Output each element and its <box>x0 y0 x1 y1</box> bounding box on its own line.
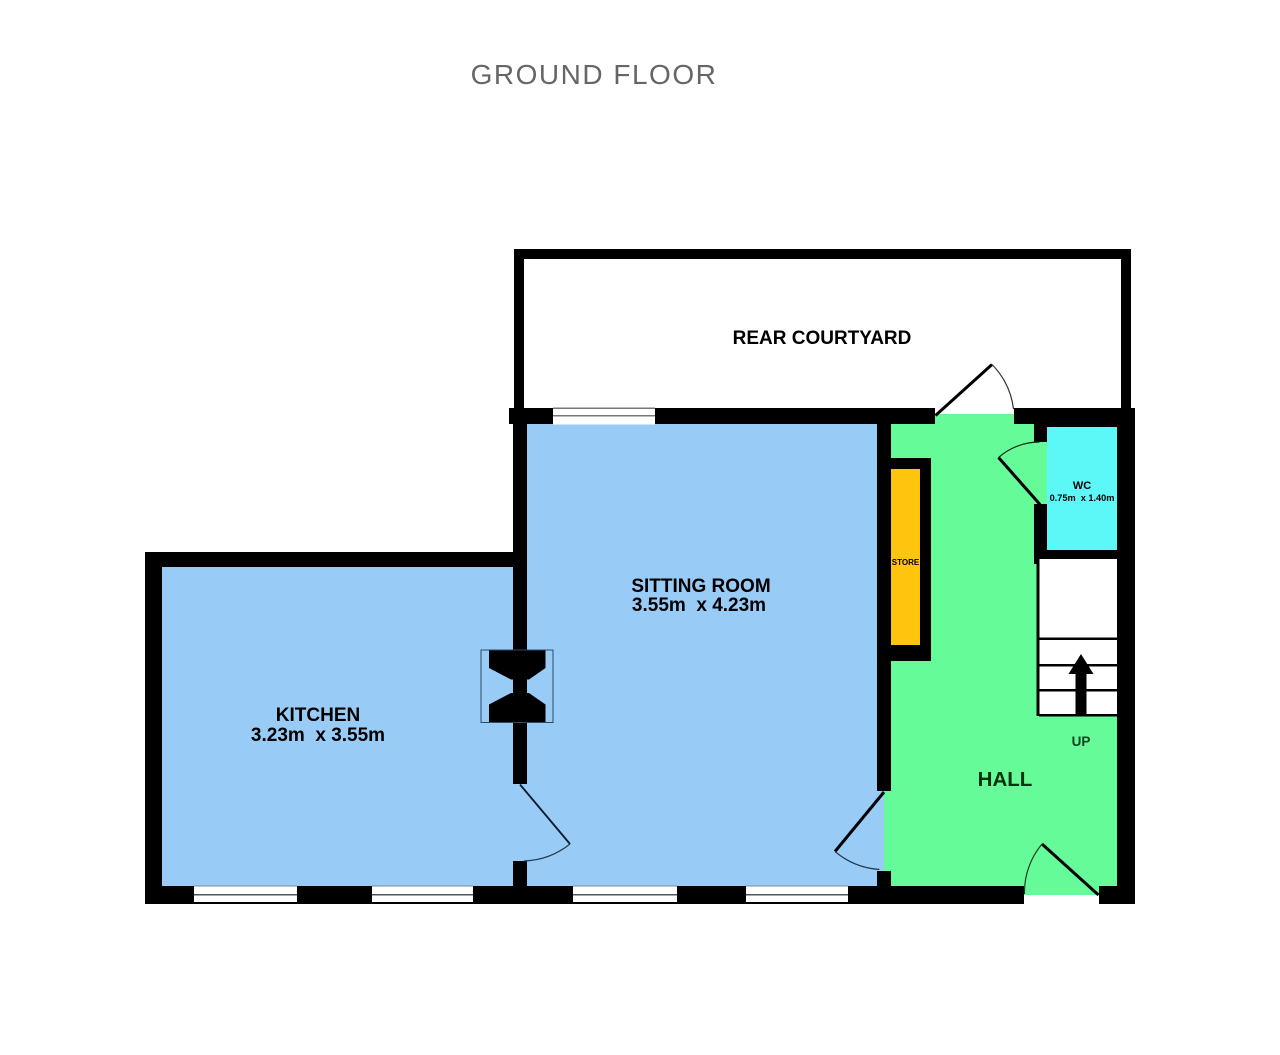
svg-text:STORE: STORE <box>892 558 920 567</box>
svg-text:3.23m x 3.55m: 3.23m x 3.55m <box>251 725 385 746</box>
svg-text:KITCHEN: KITCHEN <box>276 705 360 726</box>
svg-text:SITTING ROOM: SITTING ROOM <box>631 576 770 597</box>
svg-text:3.55m x 4.23m: 3.55m x 4.23m <box>632 595 766 616</box>
svg-text:WC: WC <box>1073 480 1091 492</box>
svg-text:HALL: HALL <box>978 768 1033 791</box>
svg-text:0.75m x 1.40m: 0.75m x 1.40m <box>1050 493 1115 503</box>
svg-text:REAR COURTYARD: REAR COURTYARD <box>733 328 912 349</box>
svg-text:UP: UP <box>1072 734 1091 749</box>
svg-text:GROUND FLOOR: GROUND FLOOR <box>471 59 718 90</box>
